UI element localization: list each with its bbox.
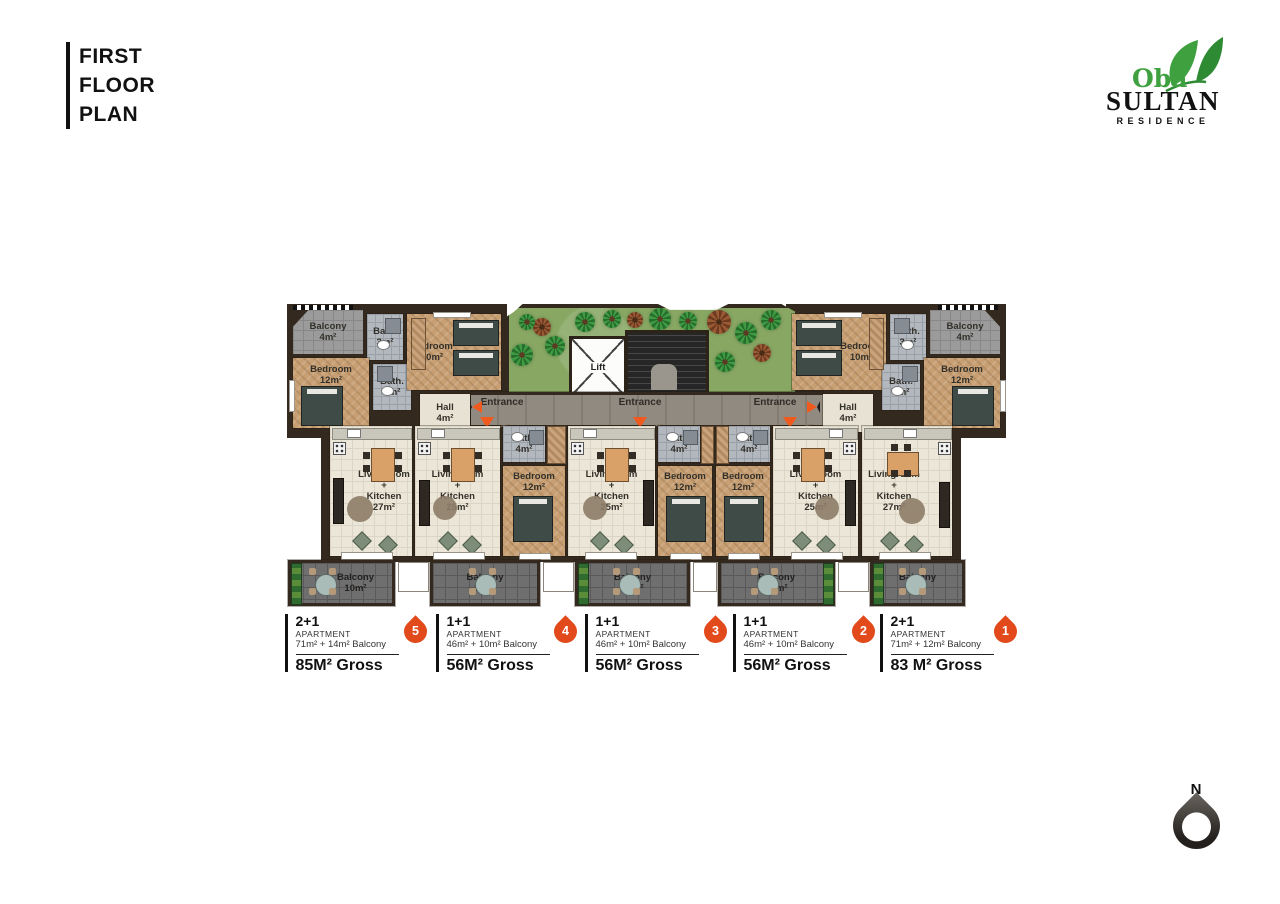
balcony-top-left: Balcony 4m² [293, 310, 363, 354]
cooktop [843, 442, 856, 455]
brand-logo: Oba SULTAN RESIDENCE [1098, 36, 1253, 132]
shower [683, 430, 698, 445]
palm-icon [707, 310, 731, 334]
dining-set [801, 448, 825, 482]
railing [938, 305, 998, 310]
dining-set [451, 448, 475, 482]
bed [952, 386, 994, 426]
kitchen-counter [332, 428, 412, 440]
cooktop [333, 442, 346, 455]
legend-bar [880, 614, 883, 672]
legend-bar [285, 614, 288, 672]
room-label-line: Bedroom [722, 471, 764, 482]
legend-text: 2+1 APARTMENT 71m² + 12m² Balcony 83 M² … [891, 614, 994, 672]
wardrobe [547, 426, 566, 464]
apartment-subtitle: APARTMENT [891, 629, 994, 639]
room-label-line: Balcony [310, 321, 347, 332]
apartment-subtitle: APARTMENT [296, 629, 399, 639]
unit-badge-number: 2 [852, 620, 875, 643]
apartment-type: 1+1 [447, 614, 550, 629]
shower [385, 318, 401, 334]
apartment-type: 2+1 [296, 614, 399, 629]
legend-bar [436, 614, 439, 672]
balcony-door [341, 552, 393, 560]
window [1000, 380, 1006, 412]
unit-badge-number: 4 [554, 620, 577, 643]
bed [796, 350, 842, 376]
apartment-subtitle: APARTMENT [744, 629, 847, 639]
window [728, 553, 760, 560]
shower [377, 366, 393, 382]
toilet [377, 340, 390, 350]
rug [899, 498, 925, 524]
apartment-type: 1+1 [596, 614, 699, 629]
rug [347, 496, 373, 522]
floor-plan: Lift Entrance Entrance Entrance Balcony … [283, 300, 1010, 610]
apartment-gross: 56M² Gross [744, 657, 847, 675]
room-label-line: 12m² [664, 482, 706, 493]
sofa [939, 482, 950, 528]
balcony-divider [693, 562, 717, 592]
apartment-detail: 46m² + 10m² Balcony [447, 639, 550, 655]
window [433, 312, 471, 318]
entrance-label-text: Entrance [619, 397, 662, 408]
room-label-line: 12m² [941, 375, 983, 386]
legend-text: 1+1 APARTMENT 46m² + 10m² Balcony 56M² G… [596, 614, 699, 672]
rug [583, 496, 607, 520]
planter [823, 563, 834, 605]
wardrobe [411, 318, 426, 370]
room-label-line: 4m² [839, 413, 856, 424]
toilet [736, 432, 749, 442]
toilet [901, 340, 914, 350]
room-label: Bedroom 12m² [941, 364, 983, 386]
sink [431, 429, 445, 438]
room-label-line: 4m² [310, 332, 347, 343]
legend-item-apt1: 2+1 APARTMENT 71m² + 12m² Balcony 83 M² … [880, 614, 994, 672]
room-label: Bedroom 12m² [310, 364, 352, 386]
apartment-gross: 83 M² Gross [891, 657, 994, 675]
palm-icon [735, 322, 757, 344]
room-label-line: Balcony [947, 321, 984, 332]
cooktop [571, 442, 584, 455]
shower [894, 318, 910, 334]
apartment-detail: 71m² + 12m² Balcony [891, 639, 994, 655]
legend-item-apt4: 1+1 APARTMENT 46m² + 10m² Balcony 56M² G… [436, 614, 550, 672]
planter [291, 563, 302, 605]
entrance-arrow-icon [469, 401, 482, 413]
kitchen-counter [417, 428, 500, 440]
room-label: Hall 4m² [436, 402, 453, 424]
balcony-table [475, 574, 497, 596]
balcony-door [585, 552, 637, 560]
toilet [511, 432, 524, 442]
title-line: FLOOR [79, 71, 155, 100]
shower [753, 430, 768, 445]
room-label-line: Hall [839, 402, 856, 413]
title-accent-bar [66, 42, 70, 129]
palm-icon [761, 310, 781, 330]
sink [903, 429, 917, 438]
balcony-door [791, 552, 843, 560]
apartment-type: 2+1 [891, 614, 994, 629]
unit-badge-3: 3 [699, 615, 732, 648]
sink [347, 429, 361, 438]
palm-icon [649, 308, 671, 330]
planter [578, 563, 589, 605]
room-label-line: 12m² [513, 482, 555, 493]
room-label-line: Bedroom [941, 364, 983, 375]
palm-icon [627, 312, 643, 328]
entrance-arrow-icon [807, 401, 820, 413]
wardrobe [869, 318, 884, 370]
balcony-table [315, 574, 337, 596]
bed [453, 320, 499, 346]
room-label-line: 4m² [737, 444, 761, 455]
sofa [643, 480, 654, 526]
room-label-line: 4m² [512, 444, 536, 455]
title-lines: FIRST FLOOR PLAN [79, 42, 155, 129]
toilet [666, 432, 679, 442]
room-label-line: 10m² [337, 583, 374, 594]
legend-item-apt2: 1+1 APARTMENT 46m² + 10m² Balcony 56M² G… [733, 614, 847, 672]
apartment-detail: 46m² + 10m² Balcony [744, 639, 847, 655]
rug [815, 496, 839, 520]
unit-badge-5: 5 [399, 615, 432, 648]
balcony-top-right: Balcony 4m² [930, 310, 1000, 354]
legend-bar [733, 614, 736, 672]
bed [796, 320, 842, 346]
palm-icon [603, 310, 621, 328]
entrance-label: Entrance [740, 397, 810, 408]
page-title: FIRST FLOOR PLAN [66, 42, 155, 129]
room-label: Balcony 4m² [310, 321, 347, 343]
sink [583, 429, 597, 438]
balcony-divider [543, 562, 574, 592]
entrance-label-text: Entrance [754, 397, 797, 408]
shower [529, 430, 544, 445]
balcony-divider [398, 562, 429, 592]
balcony-table [619, 574, 641, 596]
sofa [419, 480, 430, 526]
palm-icon [545, 336, 565, 356]
bed [453, 350, 499, 376]
apartment-subtitle: APARTMENT [596, 629, 699, 639]
room-label: Balcony 4m² [947, 321, 984, 343]
entrance-label-text: Entrance [481, 397, 524, 408]
legend-text: 1+1 APARTMENT 46m² + 10m² Balcony 56M² G… [744, 614, 847, 672]
wardrobe [701, 426, 714, 464]
title-line: FIRST [79, 42, 155, 71]
balcony-door [433, 552, 485, 560]
balcony-door [879, 552, 931, 560]
room-label-line: 12m² [722, 482, 764, 493]
bed [666, 496, 706, 542]
unit-badge-number: 3 [704, 620, 727, 643]
toilet [381, 386, 394, 396]
room-label: Balcony 10m² [337, 572, 374, 594]
shower [902, 366, 918, 382]
apartment-subtitle: APARTMENT [447, 629, 550, 639]
sofa [845, 480, 856, 526]
balcony-table [757, 574, 779, 596]
apartment-gross: 56M² Gross [447, 657, 550, 675]
unit-badge-2: 2 [847, 615, 880, 648]
room-label: Bedroom 12m² [513, 471, 555, 493]
room-label-line: 4m² [436, 413, 453, 424]
rug [433, 496, 457, 520]
balcony-divider [838, 562, 869, 592]
cooktop [938, 442, 951, 455]
palm-icon [575, 312, 595, 332]
legend-bar [585, 614, 588, 672]
room-label-line: 12m² [310, 375, 352, 386]
planter [873, 563, 884, 605]
bed [724, 496, 764, 542]
logo-residence-text: RESIDENCE [1098, 116, 1228, 126]
room-label-line: + [868, 480, 920, 491]
legend-item-apt3: 1+1 APARTMENT 46m² + 10m² Balcony 56M² G… [585, 614, 699, 672]
legend-text: 1+1 APARTMENT 46m² + 10m² Balcony 56M² G… [447, 614, 550, 672]
room-label-line: Bedroom [664, 471, 706, 482]
lift-label: Lift [589, 362, 608, 373]
window [289, 380, 295, 412]
kitchen-counter [775, 428, 858, 440]
unit-badge-number: 5 [404, 620, 427, 643]
lift: Lift [569, 336, 627, 398]
legend-item-apt5: 2+1 APARTMENT 71m² + 14m² Balcony 85M² G… [285, 614, 399, 672]
compass-icon [1163, 792, 1229, 858]
room-label-line: Bedroom [513, 471, 555, 482]
room-label: Bedroom 12m² [722, 471, 764, 493]
room-label-line: Bedroom [310, 364, 352, 375]
railing [293, 305, 353, 310]
room-label: Hall 4m² [839, 402, 856, 424]
apartment-gross: 56M² Gross [596, 657, 699, 675]
stairs-landing [651, 364, 677, 390]
room-label: Bedroom 12m² [664, 471, 706, 493]
toilet [891, 386, 904, 396]
room-label-line: Balcony [337, 572, 374, 583]
page: FIRST FLOOR PLAN Oba SULTAN RESIDENCE [0, 0, 1280, 904]
palm-icon [715, 352, 735, 372]
wardrobe [716, 426, 729, 464]
window [824, 312, 862, 318]
bed [301, 386, 343, 426]
unit-badge-number: 1 [994, 620, 1017, 643]
apartment-detail: 46m² + 10m² Balcony [596, 639, 699, 655]
title-line: PLAN [79, 100, 155, 129]
window [519, 553, 551, 560]
unit-badge-4: 4 [549, 615, 582, 648]
bed [513, 496, 553, 542]
cooktop [418, 442, 431, 455]
apartment-detail: 71m² + 14m² Balcony [296, 639, 399, 655]
window [670, 553, 702, 560]
unit-badge-1: 1 [989, 615, 1022, 648]
balcony-apt5: Balcony 10m² [288, 560, 395, 606]
palm-icon [511, 344, 533, 366]
entrance-label: Entrance [605, 397, 675, 408]
balcony-table [905, 574, 927, 596]
logo-sultan-text: SULTAN [1098, 86, 1228, 117]
sink [829, 429, 843, 438]
room-label-line: Hall [436, 402, 453, 413]
dining-set [605, 448, 629, 482]
palm-icon [679, 312, 697, 330]
dining-set [887, 452, 919, 476]
legend-text: 2+1 APARTMENT 71m² + 14m² Balcony 85M² G… [296, 614, 399, 672]
dining-set [371, 448, 395, 482]
sofa [333, 478, 344, 524]
palm-icon [753, 344, 771, 362]
room-label-line: 4m² [667, 444, 691, 455]
room-label-line: 4m² [947, 332, 984, 343]
apartment-type: 1+1 [744, 614, 847, 629]
palm-icon [533, 318, 551, 336]
palm-icon [519, 314, 535, 330]
apartment-gross: 85M² Gross [296, 657, 399, 675]
